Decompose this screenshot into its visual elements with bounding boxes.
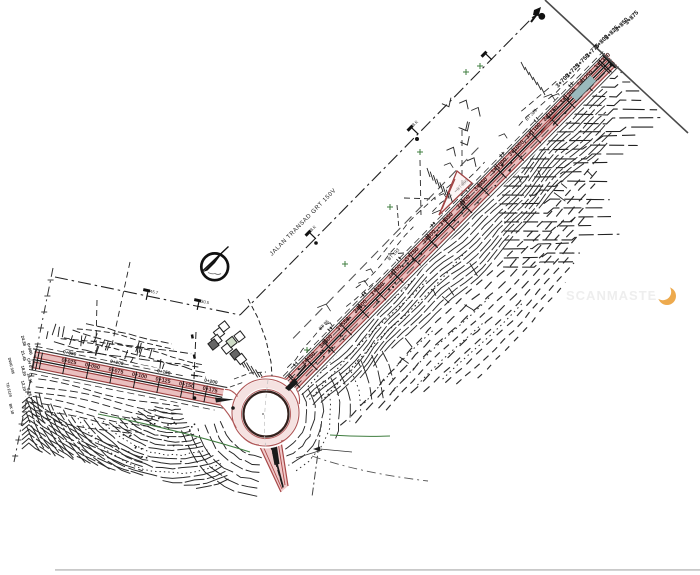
svg-text:SCANMASTER: SCANMASTER bbox=[566, 288, 668, 303]
